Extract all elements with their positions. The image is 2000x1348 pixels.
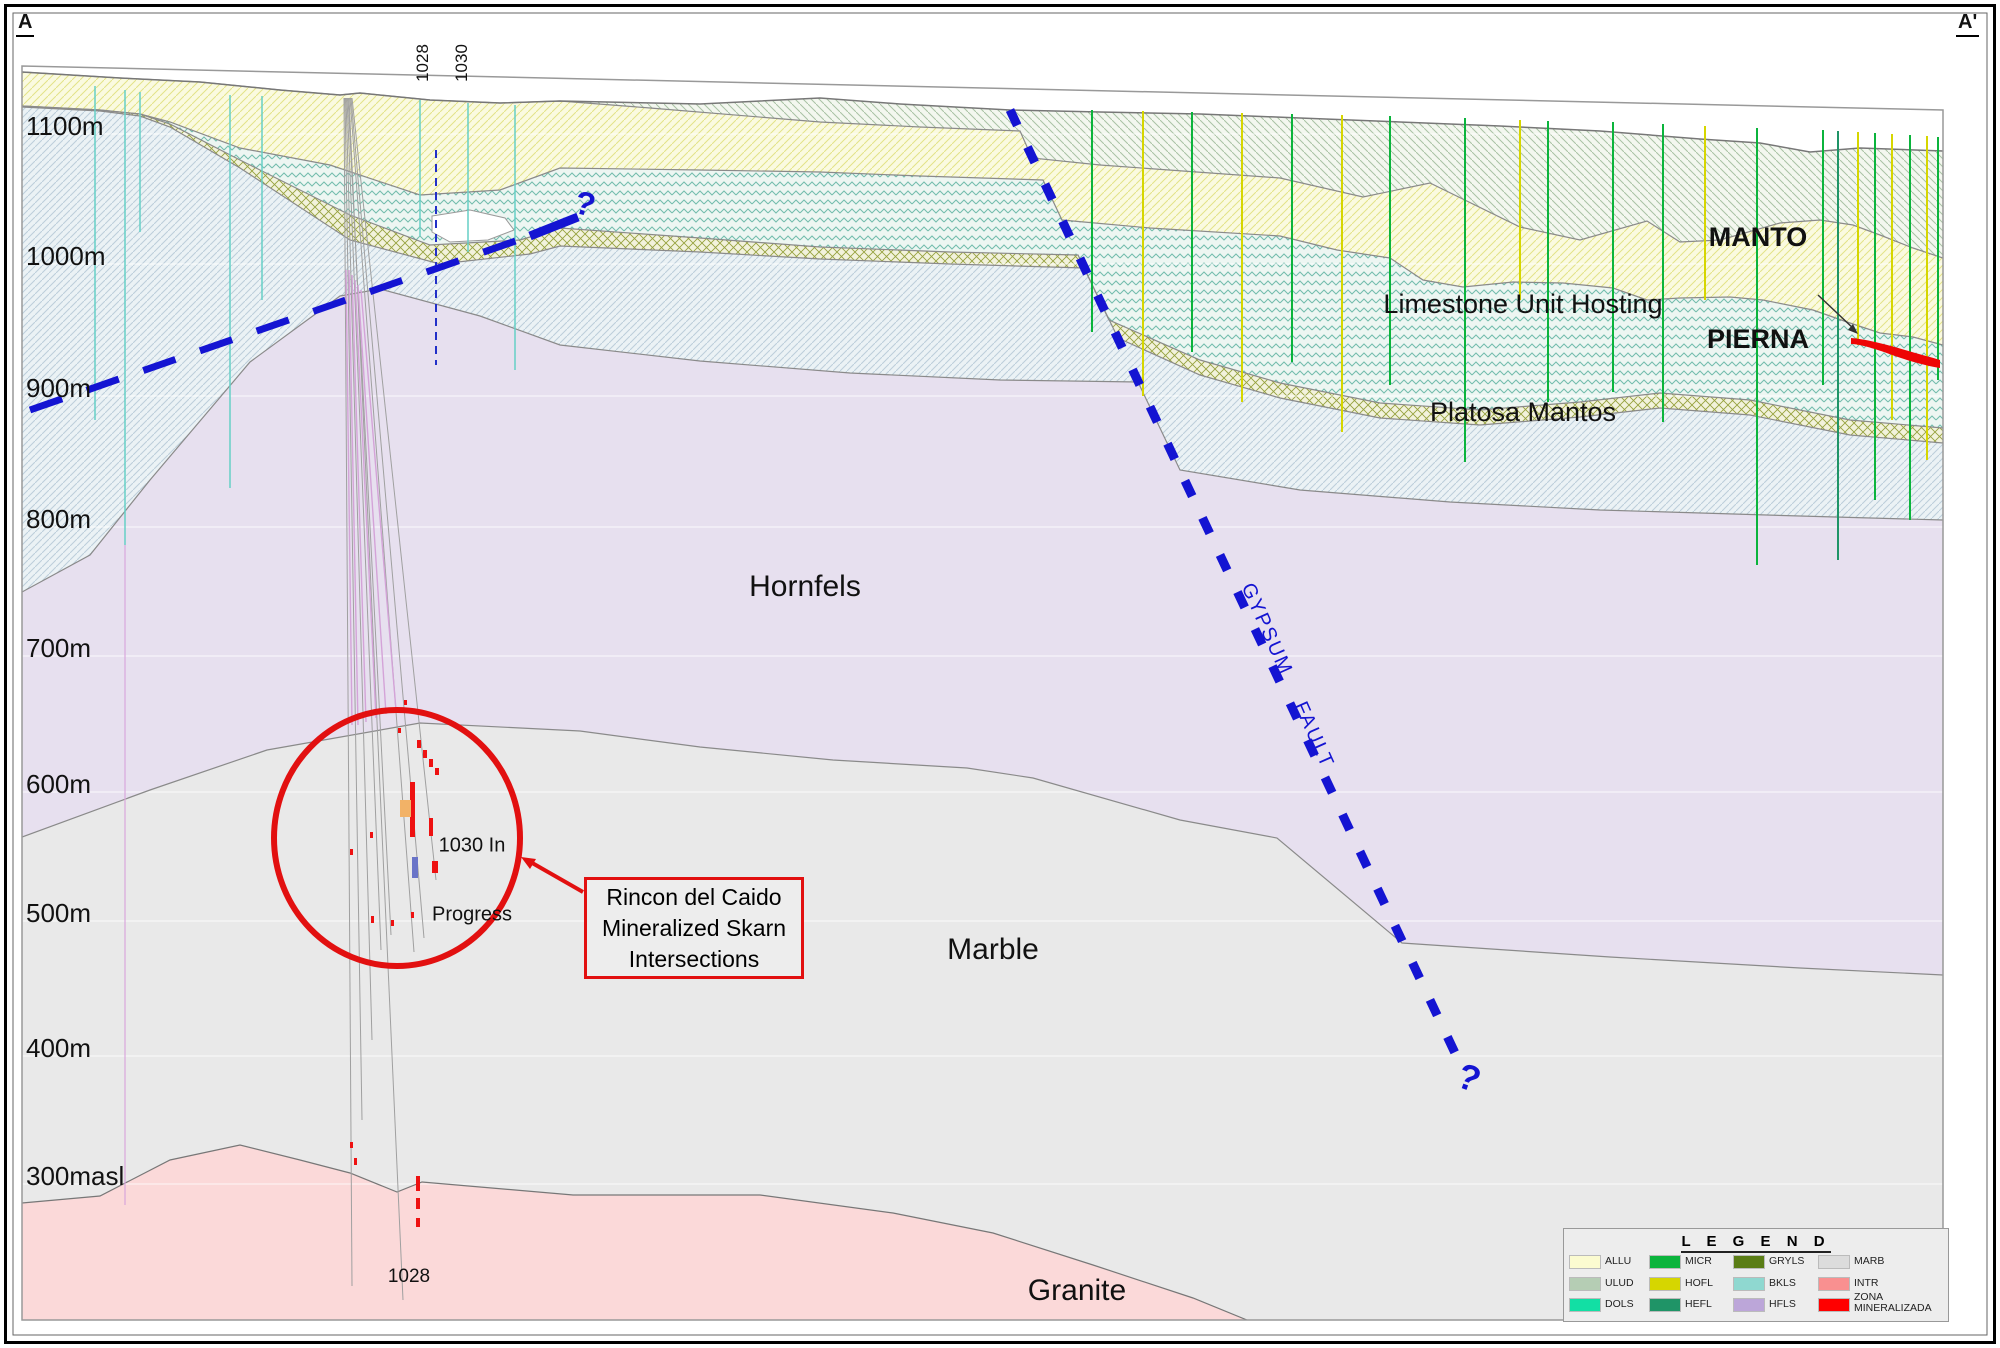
drillhole-label-1028-top: 1028 xyxy=(413,44,433,82)
drillhole-label-1030-top: 1030 xyxy=(452,44,472,82)
legend-swatch-micr xyxy=(1649,1255,1681,1269)
intercept-mark xyxy=(416,1176,420,1191)
section-end-label-a: A xyxy=(16,11,34,37)
legend-swatch-intr xyxy=(1818,1277,1850,1291)
legend-label-zona-mineralizada: ZONA MINERALIZADA xyxy=(1854,1292,1950,1314)
legend-swatch-zona-mineralizada xyxy=(1818,1298,1850,1312)
drillhole-label-1028-bottom: 1028 xyxy=(388,1266,430,1288)
elevation-label-800: 800m xyxy=(26,504,91,535)
intercept-mark xyxy=(435,768,439,775)
legend-panel: L E G E N D ALLUULUDDOLSMICRHOFLHEFLGRYL… xyxy=(1563,1228,1949,1322)
intercept-mark xyxy=(417,740,421,748)
elevation-label-1100: 1100m xyxy=(26,111,104,142)
intercept-mark xyxy=(416,1198,420,1209)
legend-swatch-gryls xyxy=(1733,1255,1765,1269)
section-end-label-a-prime: A' xyxy=(1956,11,1979,37)
elevation-label-1000: 1000m xyxy=(26,241,106,272)
intercept-mark xyxy=(371,916,374,923)
elevation-label-400: 400m xyxy=(26,1033,91,1064)
skarn-annotation-box: Rincon del Caido Mineralized Skarn Inter… xyxy=(584,877,804,979)
intercept-mark xyxy=(350,849,353,855)
legend-swatch-marb xyxy=(1818,1255,1850,1269)
elevation-label-900: 900m xyxy=(26,373,91,404)
hornfels-label: Hornfels xyxy=(749,570,861,604)
geological-cross-section: A A' 1100m 1000m 900m 800m 700m 600m 500… xyxy=(0,0,2000,1348)
marble-label: Marble xyxy=(947,933,1039,967)
granite-label: Granite xyxy=(1028,1274,1126,1308)
legend-swatch-hfls xyxy=(1733,1298,1765,1312)
intercept-mark xyxy=(429,759,433,767)
elevation-label-700: 700m xyxy=(26,633,91,664)
intercept-mark xyxy=(404,700,407,705)
manto-pierna-label: MANTO PIERNA xyxy=(1707,152,1809,390)
legend-label-bkls: BKLS xyxy=(1769,1278,1865,1289)
elevation-label-600: 600m xyxy=(26,769,91,800)
intercept-mark xyxy=(400,800,411,817)
intercept-mark xyxy=(398,728,401,733)
cross-section-canvas xyxy=(0,0,2000,1348)
legend-swatch-hofl xyxy=(1649,1277,1681,1291)
legend-title: L E G E N D xyxy=(1564,1233,1948,1253)
intercept-mark xyxy=(354,1158,357,1165)
intercept-mark xyxy=(370,832,373,838)
intercept-mark xyxy=(423,750,427,758)
elevation-label-500: 500m xyxy=(26,898,91,929)
hole-1030-progress-label: 1030 In Progress xyxy=(432,789,512,950)
legend-swatch-ulud xyxy=(1569,1277,1601,1291)
legend-label-gryls: GRYLS xyxy=(1769,1256,1865,1267)
legend-label-hfls: HFLS xyxy=(1769,1299,1865,1310)
legend-swatch-hefl xyxy=(1649,1298,1681,1312)
intercept-mark xyxy=(350,1142,353,1148)
intercept-mark xyxy=(411,912,414,918)
intercept-mark xyxy=(412,857,418,878)
intercept-mark xyxy=(391,920,394,926)
elevation-label-300: 300masl xyxy=(26,1161,124,1192)
legend-label-intr: INTR xyxy=(1854,1278,1950,1289)
legend-swatch-dols xyxy=(1569,1298,1601,1312)
intercept-mark xyxy=(416,1218,420,1227)
legend-label-marb: MARB xyxy=(1854,1256,1950,1267)
legend-swatch-bkls xyxy=(1733,1277,1765,1291)
limestone-unit-label: Limestone Unit Hosting Platosa Mantos xyxy=(1383,214,1662,466)
legend-swatch-allu xyxy=(1569,1255,1601,1269)
